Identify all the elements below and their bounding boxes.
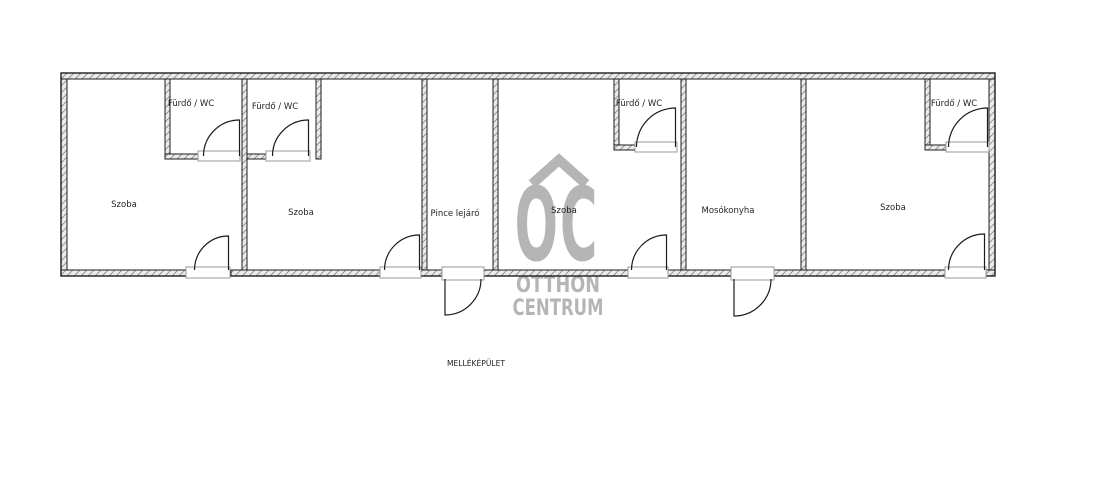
door-pince-exterior (445, 279, 481, 315)
watermark-brand-line2: CENTRUM (513, 296, 604, 321)
room-label-szoba-3: Szoba (551, 206, 577, 216)
bathroom2-wall-bottom (247, 154, 266, 159)
wall-bottom-seg-4 (484, 270, 628, 276)
partition-room1-room2 (242, 79, 247, 270)
room-label-furdo-wc-1: Fürdő / WC (168, 99, 214, 109)
threshold-bathroom3 (635, 142, 677, 152)
room-label-furdo-wc-2: Fürdő / WC (252, 102, 298, 112)
room-label-furdo-wc-4: Fürdő / WC (931, 99, 977, 109)
door-room1 (195, 236, 229, 270)
wall-bottom-seg-5 (668, 270, 731, 276)
threshold-mosokonyha-door (731, 267, 774, 280)
watermark-logo-letters: OC (515, 166, 600, 285)
threshold-pince-door (442, 267, 484, 280)
room-label-mosokonyha: Mosókonyha (702, 205, 755, 216)
room-label-pince-lejaro: Pince lejáró (431, 208, 480, 219)
wall-top (61, 73, 995, 79)
bathroom3-wall-bottom (614, 145, 635, 150)
wall-bottom-seg-6 (774, 270, 945, 276)
bathroom4-wall-left (925, 79, 930, 150)
threshold-bathroom4 (946, 142, 989, 152)
door-room2 (385, 235, 420, 270)
threshold-bathroom1 (198, 151, 240, 161)
wall-bottom-seg-7 (986, 270, 995, 276)
room-label-furdo-wc-3: Fürdő / WC (616, 99, 662, 109)
partition-room3-mosokonyha (681, 79, 686, 270)
wall-bottom-seg-3 (421, 270, 442, 276)
threshold-room2-door (380, 267, 421, 278)
threshold-room3-door (628, 267, 668, 278)
watermark-brand-line1: OTTHON (516, 273, 600, 298)
door-bathroom4 (949, 108, 988, 147)
partition-mosokonyha-room4 (801, 79, 806, 270)
watermark: OC OTTHON CENTRUM (513, 160, 604, 321)
threshold-room1-door (186, 267, 230, 278)
bathroom4-wall-bottom (925, 145, 946, 150)
wall-right (989, 79, 995, 276)
door-mosokonyha-exterior (734, 279, 771, 316)
bathroom2-wall-right (316, 79, 321, 159)
door-bathroom3 (637, 108, 676, 147)
bathroom1-wall-bottom (165, 154, 198, 159)
wall-bottom-seg-2 (231, 270, 380, 276)
wall-bottom-seg-1 (61, 270, 186, 276)
bathroom1-wall-left (165, 79, 170, 159)
door-room3 (632, 235, 667, 270)
floorplan-page: OC OTTHON CENTRUM (0, 0, 1117, 481)
partition-pince-room3 (493, 79, 498, 270)
floorplan-drawing: OC OTTHON CENTRUM (0, 0, 1117, 481)
room-label-szoba-2: Szoba (288, 208, 314, 218)
door-room4 (949, 234, 985, 270)
room-label-szoba-1: Szoba (111, 200, 137, 210)
wall-left (61, 79, 67, 276)
threshold-room4-door (945, 267, 986, 278)
bathroom3-wall-left (614, 79, 619, 150)
plan-title: MELLÉKÉPÜLET (447, 357, 505, 368)
partition-room2-pince (422, 79, 427, 270)
room-label-szoba-4: Szoba (880, 203, 906, 213)
